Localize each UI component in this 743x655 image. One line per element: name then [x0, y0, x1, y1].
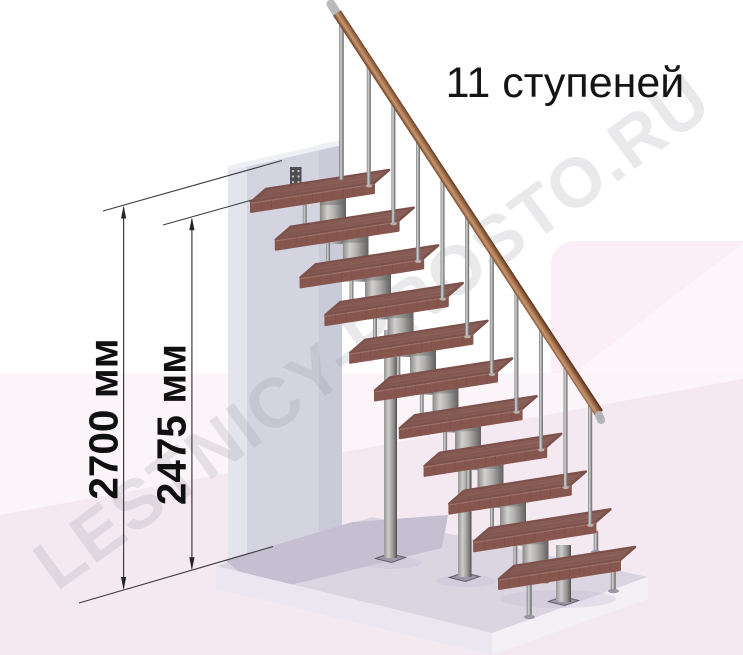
svg-text:2475 мм: 2475 мм — [149, 344, 195, 505]
svg-text:2700 мм: 2700 мм — [81, 338, 127, 499]
svg-text:11 ступеней: 11 ступеней — [446, 59, 685, 107]
